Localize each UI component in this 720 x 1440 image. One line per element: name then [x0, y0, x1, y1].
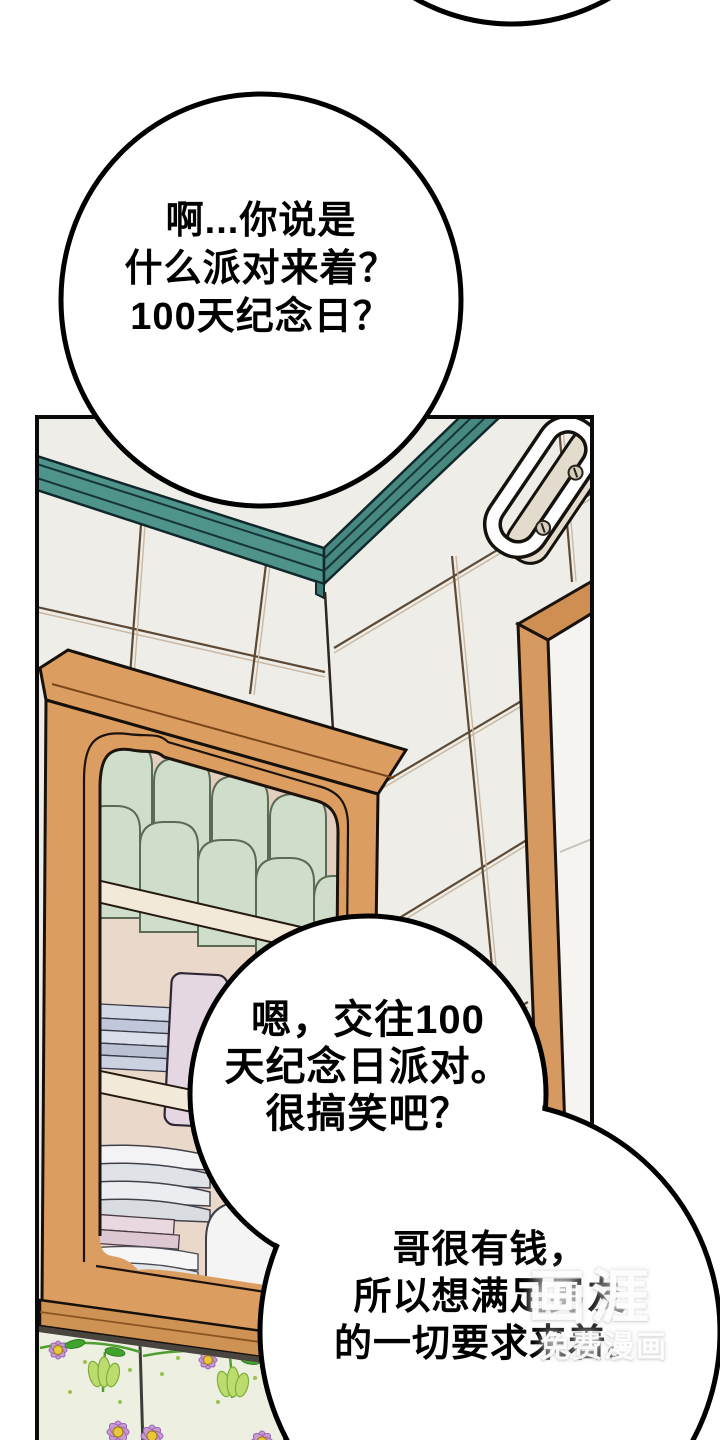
speech-bubble-2: 嗯，交往100 天纪念日派对。 很搞笑吧？: [190, 997, 546, 1138]
previous-bubble-tail-arc: [316, 0, 708, 24]
speech-bubble-1: 啊...你说是 什么派对来着？ 100天纪念日？: [61, 197, 461, 341]
bubble-2-line-3: 很搞笑吧？: [190, 1091, 546, 1138]
bubble-1-line-3: 100天纪念日？: [61, 293, 461, 341]
comic-page: 啊...你说是 什么派对来着？ 100天纪念日？ 嗯，交往100 天纪念日派对。…: [0, 0, 720, 1440]
bubble-2-line-2: 天纪念日派对。: [190, 1044, 546, 1091]
watermark-subtitle: 免费漫画: [540, 1322, 668, 1366]
bubble-1-line-1: 啊...你说是: [61, 197, 461, 245]
bubble-2-line-1: 嗯，交往100: [190, 997, 546, 1044]
bubble-1-line-2: 什么派对来着？: [61, 245, 461, 293]
